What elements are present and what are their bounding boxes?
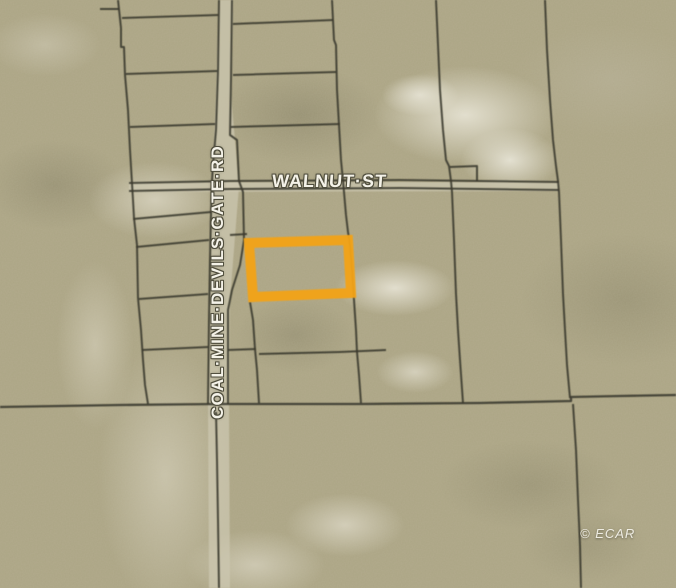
parcel-overlay <box>0 0 676 588</box>
parcel-map: WALNUT·ST COAL·MINE·DEVILS·GATE·RD © ECA… <box>0 0 676 588</box>
street-label-coal-mine-devils-gate-rd: COAL·MINE·DEVILS·GATE·RD <box>208 145 228 419</box>
street-label-walnut: WALNUT·ST <box>271 171 387 192</box>
copyright-watermark: © ECAR <box>580 526 635 541</box>
